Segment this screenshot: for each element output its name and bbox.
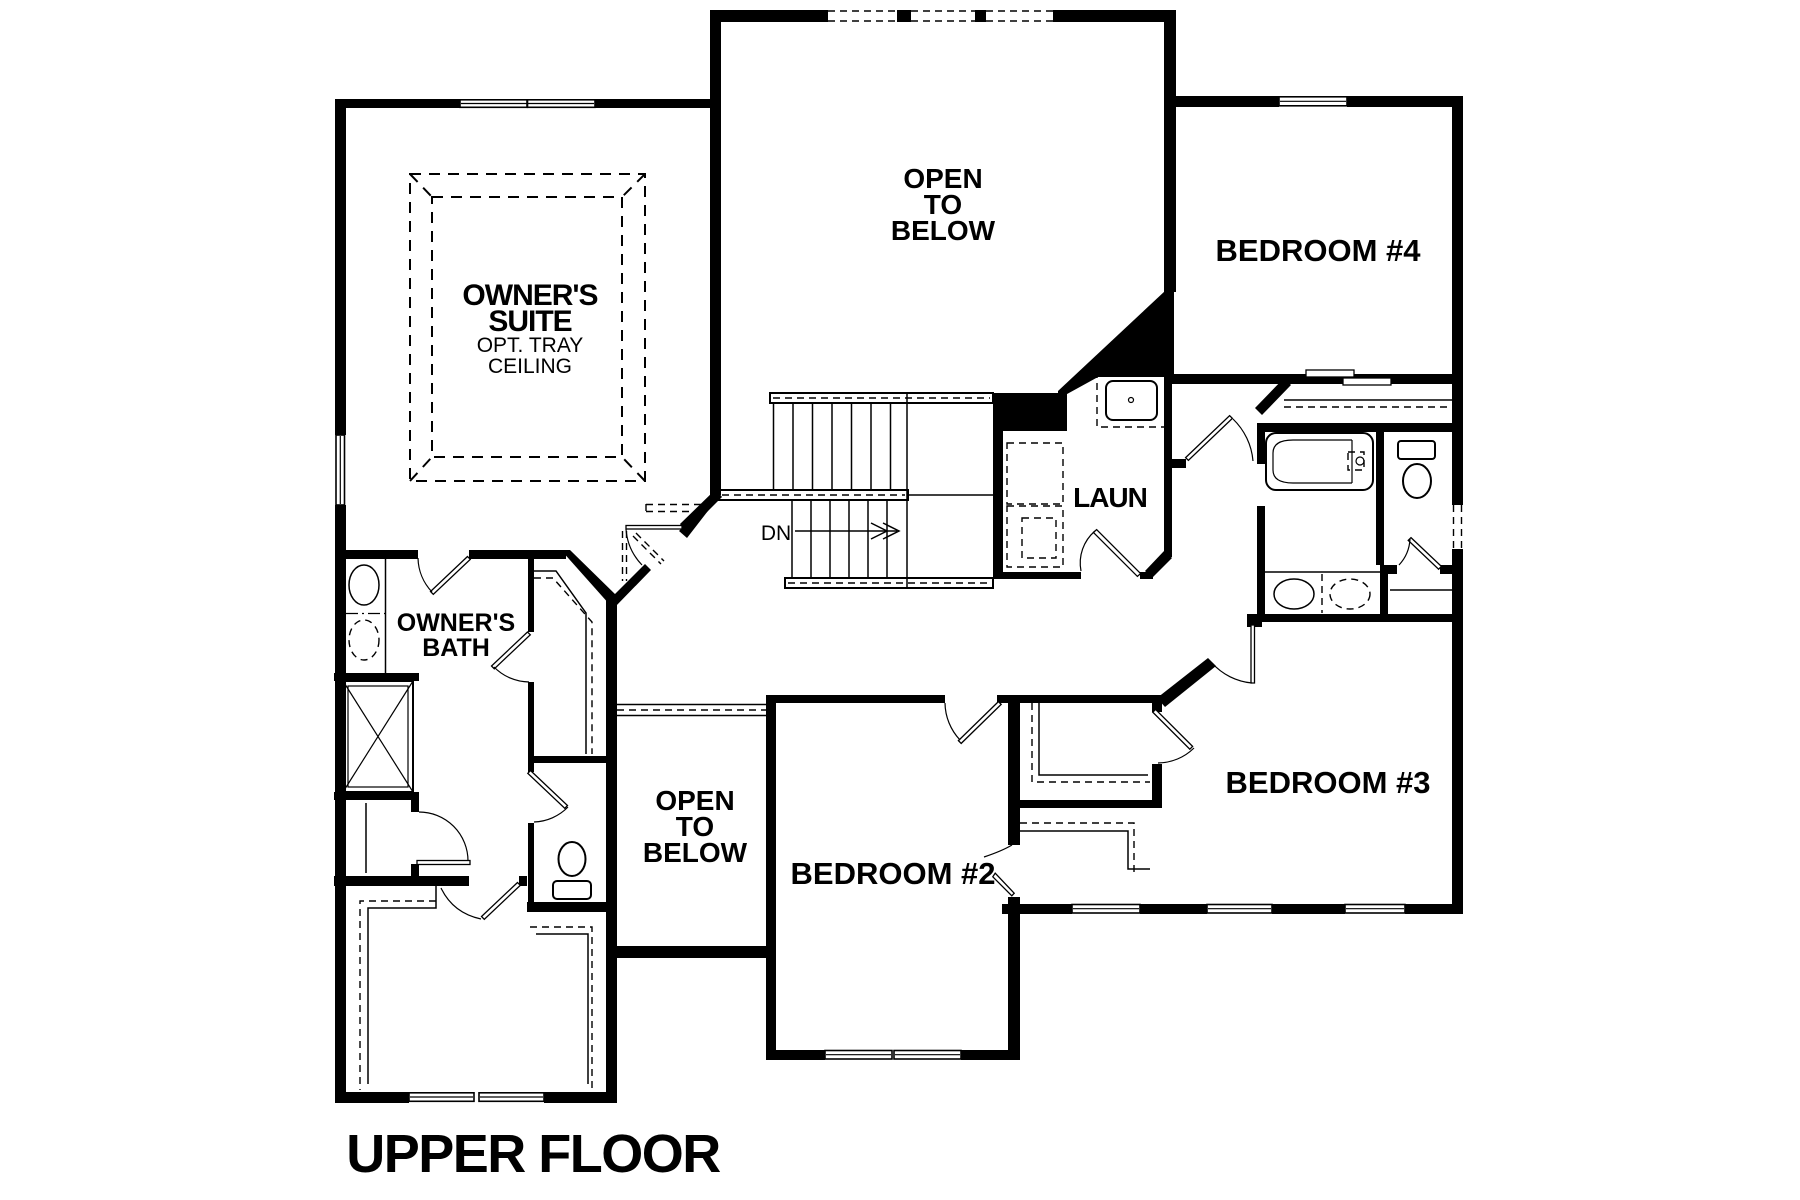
svg-text:BELOW: BELOW xyxy=(891,215,996,246)
svg-text:BEDROOM #3: BEDROOM #3 xyxy=(1226,765,1431,800)
svg-text:OPT. TRAY: OPT. TRAY xyxy=(477,334,584,357)
svg-text:DN: DN xyxy=(761,522,791,545)
svg-text:CEILING: CEILING xyxy=(488,355,572,378)
svg-text:BEDROOM #4: BEDROOM #4 xyxy=(1216,233,1422,268)
svg-text:OWNER'S: OWNER'S xyxy=(397,609,515,637)
svg-text:BATH: BATH xyxy=(422,634,490,662)
svg-text:UPPER FLOOR: UPPER FLOOR xyxy=(346,1124,720,1184)
svg-text:BELOW: BELOW xyxy=(643,837,748,868)
svg-text:BEDROOM #2: BEDROOM #2 xyxy=(791,856,996,891)
svg-text:LAUN: LAUN xyxy=(1073,482,1147,513)
